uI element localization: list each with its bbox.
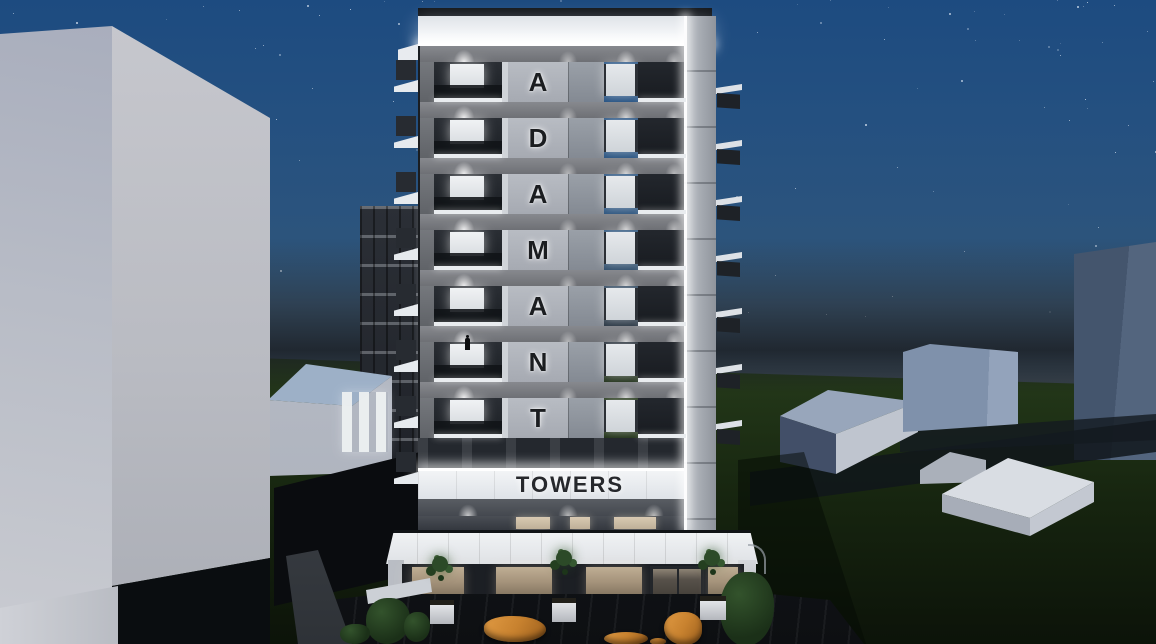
slab-wedge [394, 360, 418, 372]
star [797, 4, 798, 5]
right-balcony [638, 286, 686, 326]
star [949, 13, 951, 15]
star [1019, 40, 1020, 41]
balcony-slab-edge [434, 154, 502, 158]
star [1068, 204, 1069, 205]
glass-panel [568, 398, 604, 438]
lit-window [604, 120, 638, 152]
lit-window [450, 176, 484, 200]
balcony-slab-edge [434, 98, 502, 102]
floor-band: T [420, 398, 686, 438]
facade-letter: A [529, 291, 548, 322]
side-balcony [716, 252, 742, 282]
star [299, 160, 300, 161]
lit-window [604, 232, 638, 264]
planter-box [552, 598, 576, 622]
balcony-slab-edge [434, 266, 502, 270]
lit-window [450, 64, 484, 88]
left-slab-edge [394, 60, 418, 94]
floor-spandrel-downlights [420, 214, 686, 230]
right-balcony [638, 342, 686, 382]
lit-window [604, 64, 638, 96]
star [961, 80, 963, 82]
floor-spandrel-downlights [420, 326, 686, 342]
orange-bench [650, 638, 666, 644]
roof-parapet-led [418, 16, 712, 46]
star [1077, 6, 1079, 8]
parapet-side-step [398, 44, 418, 60]
glass-panel [568, 342, 604, 382]
orange-bench [484, 616, 546, 642]
facade-letter: D [529, 123, 548, 154]
star [560, 0, 562, 2]
sign-floor-windows [418, 438, 684, 468]
concrete-pier [420, 230, 434, 270]
right-balcony [638, 398, 686, 438]
balcony-slab-edge [434, 378, 502, 382]
adamant-towers-render: A D [0, 0, 1156, 644]
floor-spandrel-downlights [420, 158, 686, 174]
letter-panel: D [508, 118, 568, 158]
star [795, 188, 796, 189]
lit-window [450, 400, 484, 424]
floor-band: N [420, 342, 686, 382]
warm-lit-window [516, 517, 550, 529]
star [1069, 120, 1070, 121]
left-balcony [434, 62, 502, 102]
balcony-slab-edge [434, 434, 502, 438]
balcony-rail [396, 60, 416, 80]
planter-box [700, 596, 726, 620]
warm-lit-window [570, 517, 590, 529]
balcony-slab-edge [638, 98, 686, 102]
lit-window [450, 288, 484, 312]
tree [432, 556, 448, 572]
left-balcony-edges [394, 60, 418, 520]
floor-spandrel-downlights [420, 102, 686, 118]
towers-sign-text: TOWERS [478, 472, 624, 498]
star [422, 1, 423, 2]
star [1147, 31, 1148, 32]
star [166, 19, 167, 20]
star [1004, 14, 1005, 15]
star [897, 167, 898, 168]
star [967, 28, 969, 30]
star [384, 1, 385, 2]
letter-panel: A [508, 286, 568, 326]
slab-wedge [394, 80, 418, 92]
balcony-slab-edge [434, 210, 502, 214]
side-balcony [716, 364, 742, 394]
left-balcony [434, 118, 502, 158]
floor-band: A [420, 62, 686, 102]
balcony-slab-edge [638, 378, 686, 382]
star [1115, 152, 1116, 153]
star [933, 191, 934, 192]
bush [720, 572, 774, 644]
left-balcony [434, 174, 502, 214]
left-slab-edge [394, 452, 418, 486]
star [1085, 99, 1086, 100]
star [350, 9, 351, 10]
left-slab-edge [394, 228, 418, 262]
warm-lit-window [614, 517, 656, 529]
star [975, 40, 976, 41]
tower-floor: T [420, 382, 686, 438]
balcony-slab-edge [434, 322, 502, 326]
person-silhouette [465, 338, 470, 350]
facade-letter: A [529, 179, 548, 210]
right-balcony [638, 230, 686, 270]
side-balcony [716, 308, 742, 338]
concrete-pier [420, 398, 434, 438]
star [1102, 42, 1103, 43]
star [255, 48, 256, 49]
facade-letter: N [529, 347, 548, 378]
star [319, 15, 320, 16]
balcony-rail [396, 340, 416, 360]
glass-panel [568, 230, 604, 270]
balcony-rail [396, 228, 416, 248]
balcony-slab-edge [638, 154, 686, 158]
star [279, 54, 281, 56]
slab-wedge [394, 416, 418, 428]
star [307, 5, 309, 7]
star [884, 39, 885, 40]
star [1048, 46, 1050, 48]
left-balcony [434, 230, 502, 270]
left-massing-side-face [112, 26, 270, 644]
star [1153, 81, 1154, 82]
balcony-rail [396, 452, 416, 472]
side-balcony [716, 420, 742, 450]
mezzanine-band [418, 516, 684, 530]
star [1098, 227, 1099, 228]
planter-box [430, 600, 454, 624]
tree [704, 550, 720, 566]
letter-panel: A [508, 174, 568, 214]
slab-wedge [394, 248, 418, 260]
star [1083, 6, 1084, 7]
balcony-slab-edge [638, 266, 686, 270]
star [263, 45, 264, 46]
floor-spandrel-downlights [420, 46, 686, 62]
left-slab-edge [394, 116, 418, 150]
concrete-pier [420, 62, 434, 102]
tower-floor: A [420, 46, 686, 102]
side-balcony [716, 196, 742, 226]
slab-wedge [394, 472, 418, 484]
star [888, 7, 889, 8]
right-balcony [638, 118, 686, 158]
slab-wedge [394, 192, 418, 204]
letter-panel: N [508, 342, 568, 382]
side-balcony [716, 140, 742, 170]
slab-wedge [394, 304, 418, 316]
lit-window [450, 232, 484, 256]
facade-letter: A [529, 67, 548, 98]
left-house-lit-windows [342, 392, 388, 452]
star [1060, 43, 1061, 44]
star [1057, 0, 1058, 1]
star [239, 10, 240, 11]
left-slab-edge [394, 340, 418, 374]
concrete-pier [420, 174, 434, 214]
floor-band: A [420, 286, 686, 326]
sign-spandrel-downlights [418, 499, 684, 516]
left-massing-front-face [0, 26, 112, 644]
lit-window [604, 176, 638, 208]
orange-bench [604, 632, 648, 644]
star [917, 88, 918, 89]
corner-pillar-led [684, 16, 716, 530]
towers-sign: TOWERS [418, 471, 684, 499]
left-slab-edge [394, 284, 418, 318]
lit-window [450, 120, 484, 144]
star [974, 11, 975, 12]
letter-panel: A [508, 62, 568, 102]
star [1087, 2, 1088, 3]
roof-cap [418, 8, 712, 16]
concrete-pier [420, 342, 434, 382]
star [1057, 49, 1059, 51]
letter-panel: T [508, 398, 568, 438]
slab-wedge [394, 136, 418, 148]
star [276, 119, 277, 120]
facade-letter: M [527, 235, 549, 266]
floor-spandrel-downlights [420, 270, 686, 286]
glass-panel [568, 174, 604, 214]
glass-panel [568, 62, 604, 102]
glass-panel [568, 286, 604, 326]
concrete-pier [420, 118, 434, 158]
floor-band: A [420, 174, 686, 214]
tower-floor: A [420, 158, 686, 214]
lit-window [604, 344, 638, 376]
floor-band: D [420, 118, 686, 158]
floor-spandrel-downlights [420, 382, 686, 398]
star [76, 22, 78, 24]
floor-band: M [420, 230, 686, 270]
facade-letter: T [530, 403, 546, 434]
star [820, 22, 822, 24]
balcony-rail [396, 396, 416, 416]
star [203, 6, 204, 7]
star [1060, 55, 1061, 56]
star [312, 88, 313, 89]
orange-bench [664, 612, 702, 644]
star [13, 13, 14, 14]
letter-panel: M [508, 230, 568, 270]
tower-floors: A D [418, 46, 684, 438]
right-balcony [638, 174, 686, 214]
star [865, 124, 867, 126]
star [1044, 107, 1045, 108]
tower-floor: D [420, 102, 686, 158]
tower-floor: A [420, 270, 686, 326]
balcony-rail [396, 116, 416, 136]
tower-floor: N [420, 326, 686, 382]
star [1128, 125, 1129, 126]
star [434, 1, 435, 2]
left-balcony [434, 286, 502, 326]
side-balconies [716, 8, 744, 538]
star [1087, 108, 1088, 109]
left-slab-edge [394, 172, 418, 206]
balcony-slab-edge [638, 322, 686, 326]
star [757, 32, 758, 33]
balcony-rail [396, 172, 416, 192]
sign-section: TOWERS [418, 438, 684, 516]
left-slab-edge [394, 396, 418, 430]
tower-floor: M [420, 214, 686, 270]
concrete-pier [420, 286, 434, 326]
right-balcony [638, 62, 686, 102]
left-balcony [434, 398, 502, 438]
glass-panel [568, 118, 604, 158]
lit-window [604, 288, 638, 320]
lit-window [604, 400, 638, 432]
balcony-slab-edge [638, 210, 686, 214]
side-balcony [716, 84, 742, 114]
star [830, 0, 831, 1]
balcony-rail [396, 284, 416, 304]
tree [556, 550, 572, 566]
star [1114, 5, 1115, 6]
balcony-slab-edge [638, 434, 686, 438]
